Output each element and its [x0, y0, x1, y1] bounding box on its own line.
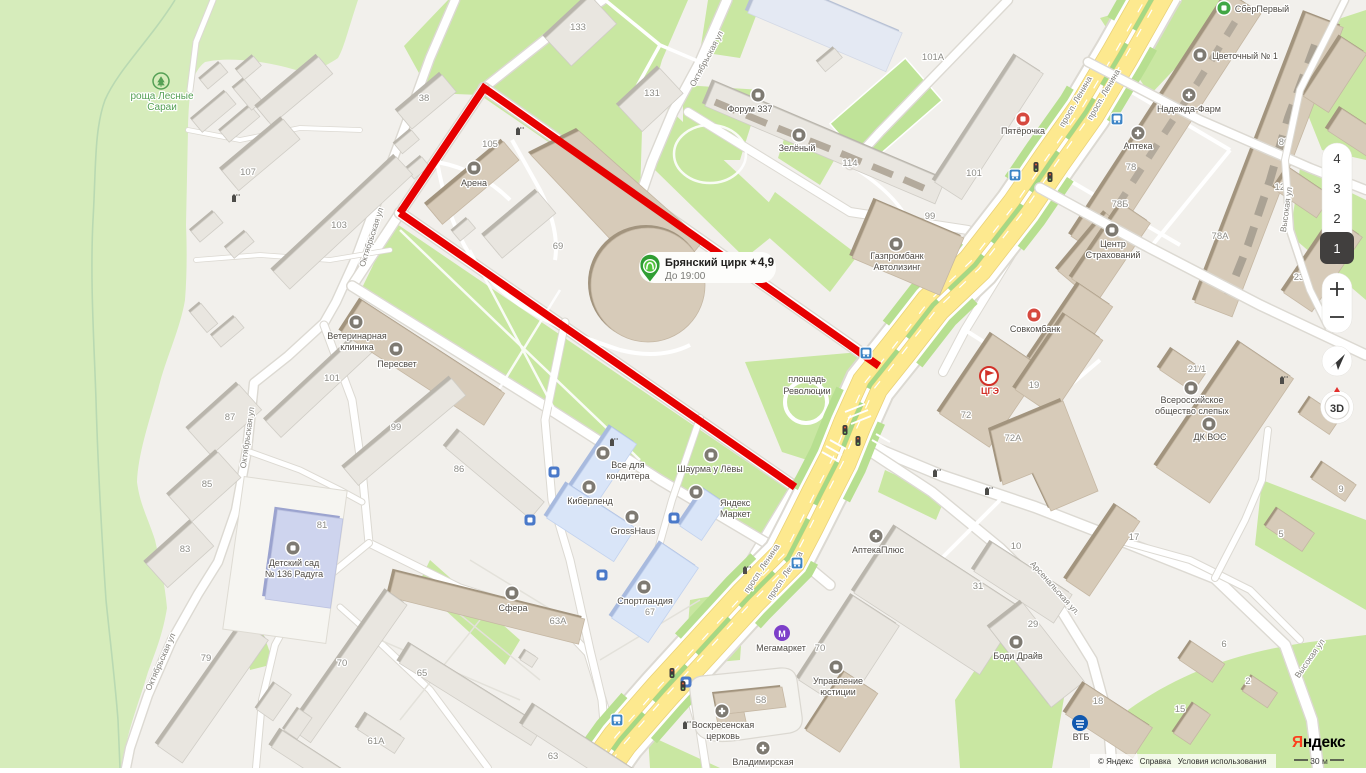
svg-text:Автолизинг: Автолизинг	[873, 262, 921, 272]
svg-text:Мегамаркет: Мегамаркет	[756, 643, 806, 653]
svg-text:70: 70	[337, 658, 348, 669]
svg-text:Боди Драйв: Боди Драйв	[993, 651, 1043, 661]
svg-text:10: 10	[1011, 541, 1022, 552]
svg-text:3: 3	[1333, 181, 1340, 196]
svg-text:Совкомбанк: Совкомбанк	[1010, 324, 1060, 334]
svg-text:Всероссийское: Всероссийское	[1160, 395, 1223, 405]
svg-text:Арена: Арена	[461, 178, 487, 188]
svg-text:4: 4	[1333, 151, 1340, 166]
svg-text:ДК ВОС: ДК ВОС	[1193, 432, 1227, 442]
svg-text:СберПервый: СберПервый	[1235, 4, 1289, 14]
svg-text:роща Лесные: роща Лесные	[130, 91, 194, 102]
svg-text:1: 1	[1333, 241, 1340, 256]
svg-text:Газпромбанк: Газпромбанк	[870, 251, 923, 261]
svg-text:Управление: Управление	[813, 676, 863, 686]
svg-text:Киберленд: Киберленд	[567, 496, 613, 506]
svg-text:Спортландия: Спортландия	[617, 596, 673, 606]
svg-text:Пятёрочка: Пятёрочка	[1001, 126, 1045, 136]
svg-text:63: 63	[548, 751, 559, 762]
svg-text:6: 6	[1221, 639, 1226, 650]
svg-text:кондитера: кондитера	[606, 471, 649, 481]
svg-text:Аптека: Аптека	[1123, 141, 1152, 151]
svg-text:Шаурма у Лёвы: Шаурма у Лёвы	[677, 464, 742, 474]
svg-text:78А: 78А	[1212, 231, 1230, 242]
svg-text:Детский сад: Детский сад	[269, 558, 320, 568]
svg-text:78Б: 78Б	[1112, 199, 1129, 210]
svg-text:107: 107	[240, 167, 256, 178]
svg-text:101: 101	[324, 373, 340, 384]
svg-text:78: 78	[1126, 162, 1137, 173]
svg-text:15: 15	[1175, 704, 1186, 715]
svg-text:№ 136 Радуга: № 136 Радуга	[265, 569, 323, 579]
svg-text:83: 83	[180, 544, 191, 555]
svg-text:17: 17	[1129, 532, 1140, 543]
svg-text:105: 105	[482, 139, 498, 150]
svg-text:131: 131	[644, 88, 660, 99]
svg-text:2: 2	[1245, 676, 1250, 687]
svg-text:63А: 63А	[550, 616, 568, 627]
svg-text:Цветочный № 1: Цветочный № 1	[1212, 51, 1278, 61]
svg-text:101: 101	[966, 168, 982, 179]
svg-text:9: 9	[1338, 484, 1343, 495]
svg-text:31: 31	[973, 581, 984, 592]
svg-text:58: 58	[756, 695, 767, 706]
svg-text:72А: 72А	[1005, 433, 1023, 444]
svg-text:19: 19	[1029, 380, 1040, 391]
svg-text:Зелёный: Зелёный	[779, 143, 816, 153]
svg-text:2: 2	[1333, 211, 1340, 226]
svg-text:Все для: Все для	[611, 460, 645, 470]
svg-text:86: 86	[454, 464, 465, 475]
svg-text:Сараи: Сараи	[147, 102, 177, 113]
svg-text:ЦГЭ: ЦГЭ	[981, 386, 1000, 396]
svg-text:М: М	[778, 629, 786, 639]
svg-text:70: 70	[815, 643, 826, 654]
svg-text:церковь: церковь	[706, 731, 740, 741]
svg-text:72: 72	[961, 410, 972, 421]
svg-text:29: 29	[1028, 619, 1039, 630]
svg-text:79: 79	[201, 653, 212, 664]
svg-text:99: 99	[925, 211, 936, 222]
svg-text:Сфера: Сфера	[499, 603, 528, 613]
svg-text:30 м: 30 м	[1310, 756, 1328, 766]
svg-text:21/1: 21/1	[1188, 364, 1207, 375]
svg-text:38: 38	[419, 93, 430, 104]
svg-text:101А: 101А	[922, 52, 945, 63]
svg-text:ВТБ: ВТБ	[1073, 732, 1090, 742]
svg-text:Страхований: Страхований	[1086, 250, 1141, 260]
svg-text:65: 65	[417, 668, 428, 679]
svg-text:133: 133	[570, 22, 586, 33]
svg-text:61А: 61А	[368, 736, 386, 747]
svg-text:общество слепых: общество слепых	[1155, 406, 1229, 416]
svg-text:103: 103	[331, 220, 347, 231]
svg-text:До 19:00: До 19:00	[665, 271, 706, 282]
svg-text:Яндекс: Яндекс	[1292, 734, 1346, 751]
svg-text:81: 81	[317, 520, 328, 531]
svg-text:GrossHaus: GrossHaus	[610, 526, 656, 536]
svg-text:Революции: Революции	[783, 386, 830, 396]
svg-text:5: 5	[1278, 529, 1283, 540]
svg-text:Воскресенская: Воскресенская	[692, 720, 755, 730]
svg-text:4,9: 4,9	[758, 257, 774, 269]
svg-text:Маркет: Маркет	[720, 509, 750, 519]
svg-text:18: 18	[1093, 696, 1104, 707]
svg-text:114: 114	[842, 158, 857, 169]
svg-text:площадь: площадь	[788, 374, 826, 384]
svg-text:клиника: клиника	[340, 342, 373, 352]
svg-text:Ветеринарная: Ветеринарная	[327, 331, 387, 341]
svg-text:87: 87	[225, 412, 236, 423]
svg-text:★: ★	[749, 257, 758, 268]
svg-text:Пересвет: Пересвет	[377, 359, 417, 369]
svg-text:Надежда-Фарм: Надежда-Фарм	[1157, 104, 1221, 114]
svg-text:69: 69	[553, 241, 564, 252]
svg-text:Форум 337: Форум 337	[728, 104, 773, 114]
svg-text:Владимирская: Владимирская	[732, 757, 793, 767]
svg-text:67: 67	[645, 607, 655, 617]
svg-text:3D: 3D	[1330, 403, 1344, 415]
svg-text:85: 85	[202, 479, 213, 490]
svg-text:Центр: Центр	[1100, 239, 1126, 249]
svg-text:99: 99	[391, 422, 402, 433]
svg-text:© Яндекс Справка Условия и: © Яндекс Справка Условия использования	[1098, 757, 1267, 766]
svg-text:юстиции: юстиции	[820, 687, 856, 697]
svg-text:Яндекс: Яндекс	[720, 498, 751, 508]
svg-text:АптекаПлюс: АптекаПлюс	[852, 545, 905, 555]
svg-text:Брянский цирк: Брянский цирк	[665, 257, 747, 269]
